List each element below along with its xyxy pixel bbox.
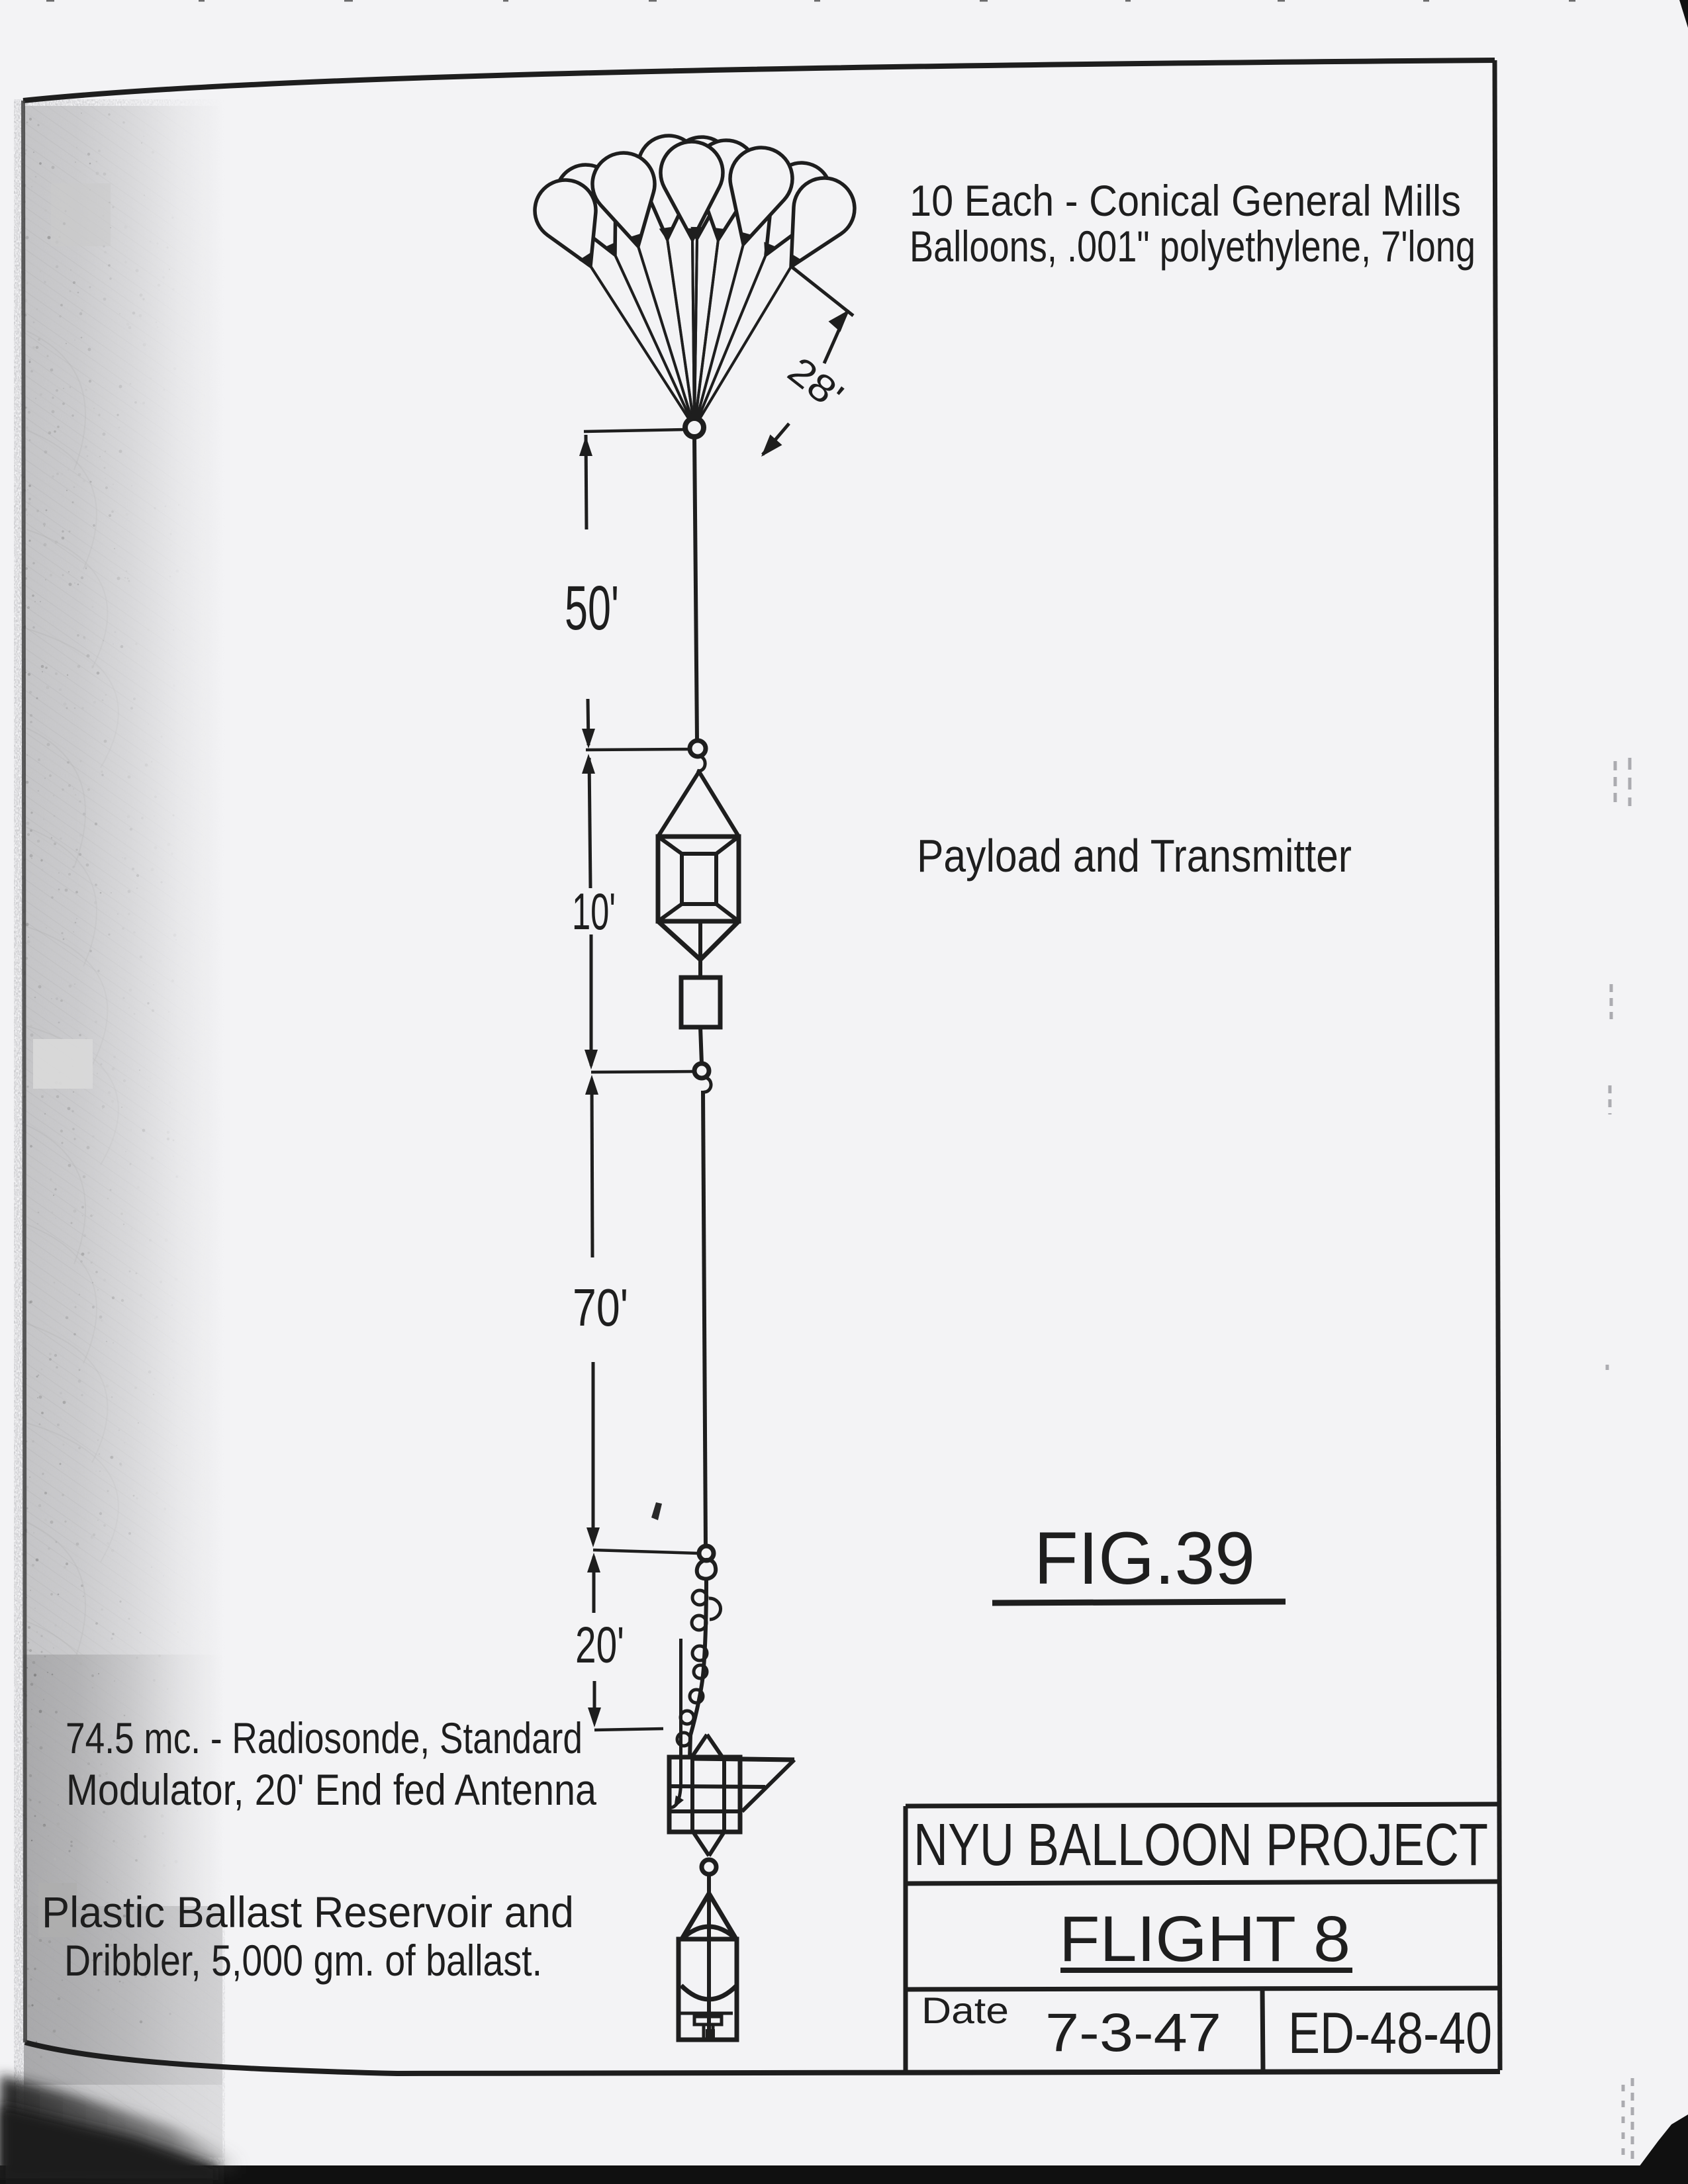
svg-text:74.5 mc. - Radiosonde, Standar: 74.5 mc. - Radiosonde, Standard (66, 1713, 583, 1762)
svg-text:ED-48-40: ED-48-40 (1288, 2000, 1492, 2066)
svg-text:20': 20' (575, 1617, 624, 1674)
svg-text:Modulator, 20' End fed Antenna: Modulator, 20' End fed Antenna (66, 1765, 596, 1814)
svg-text:FIG.39: FIG.39 (1034, 1517, 1255, 1600)
svg-text:10 Each - Conical General Mill: 10 Each - Conical General Mills (910, 176, 1461, 225)
svg-text:50': 50' (565, 573, 619, 643)
svg-text:Plastic Ballast Reservoir and: Plastic Ballast Reservoir and (42, 1888, 574, 1936)
svg-text:Payload and Transmitter: Payload and Transmitter (917, 830, 1352, 882)
svg-text:Date: Date (921, 1989, 1009, 2031)
svg-text:Dribbler, 5,000 gm. of ballast: Dribbler, 5,000 gm. of ballast. (64, 1936, 542, 1985)
svg-text:FLIGHT 8: FLIGHT 8 (1059, 1903, 1350, 1975)
svg-text:NYU BALLOON PROJECT: NYU BALLOON PROJECT (914, 1812, 1488, 1878)
svg-text:10': 10' (572, 882, 616, 940)
svg-text:Balloons, .001" polyethylene,: Balloons, .001" polyethylene, 7'long (910, 222, 1476, 271)
svg-text:7-3-47: 7-3-47 (1045, 2003, 1221, 2063)
svg-text:70': 70' (573, 1278, 628, 1337)
